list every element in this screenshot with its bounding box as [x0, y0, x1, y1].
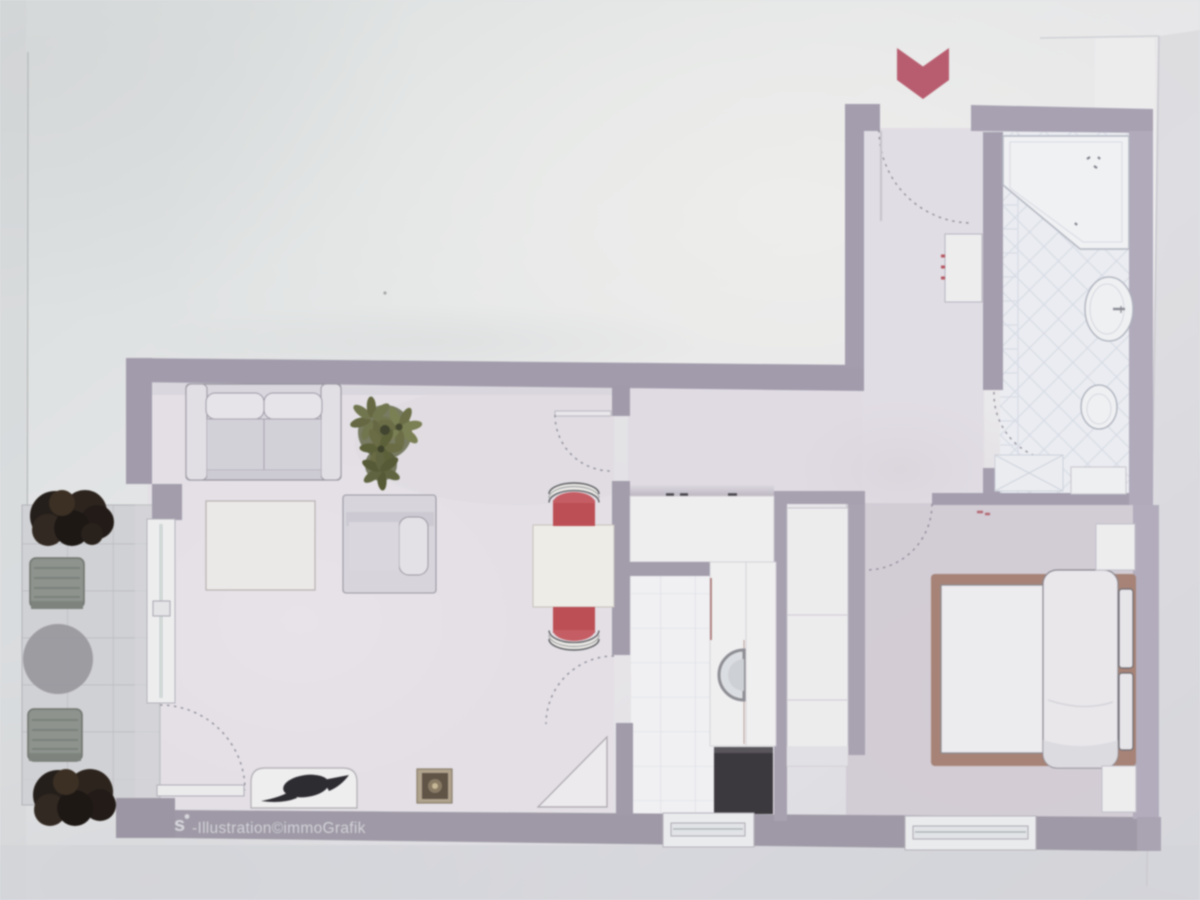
svg-text:-Illustration©immoGrafik: -Illustration©immoGrafik: [192, 820, 366, 837]
svg-text:s: s: [174, 814, 185, 836]
